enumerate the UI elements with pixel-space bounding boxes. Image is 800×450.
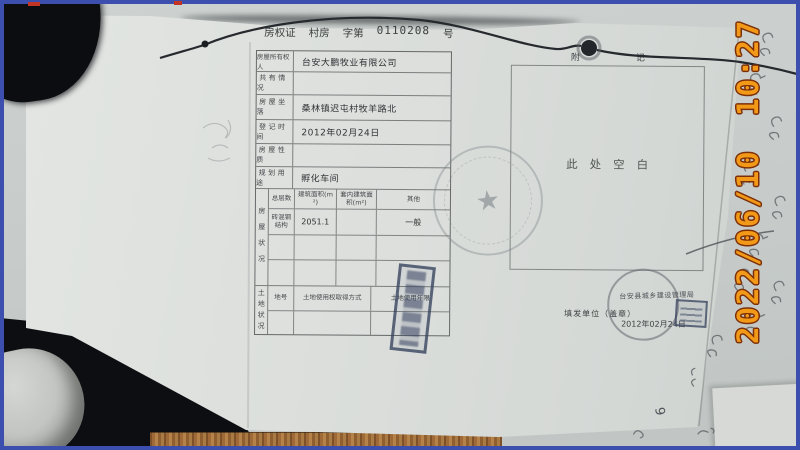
red-mark	[28, 2, 40, 6]
row-value	[294, 72, 451, 95]
table-row: 规划用途 孵化车间	[256, 167, 450, 190]
empty-cell	[294, 311, 371, 335]
certificate-hao: 号	[443, 26, 454, 41]
column-header: 总层数	[269, 189, 295, 208]
housing-data-row: 砖混钢结构 2051.1 一般	[269, 209, 450, 236]
row-value: 2012年02月24日	[293, 120, 450, 144]
table-row: 共有情况	[257, 72, 451, 96]
rect-seal-stamp	[674, 299, 708, 328]
rect-seal-lines	[680, 304, 703, 322]
vertical-seal-glyphs	[399, 270, 426, 347]
certificate-region-type: 村房	[309, 25, 330, 40]
appendix-header: 附记	[511, 50, 705, 64]
empty-cell	[268, 311, 294, 334]
certificate-number: 0110208	[377, 24, 430, 37]
section-label-vertical: 土地状况	[255, 286, 268, 334]
row-label: 房屋所有权人	[257, 51, 294, 71]
row-value: 台安大鹏牧业有限公司	[294, 51, 451, 72]
housing-header-row: 总层数 建筑面积(m²) 套内建筑面积(m²) 其他	[269, 189, 450, 210]
appendix-box: 此处空白	[509, 65, 704, 271]
star-icon: ★	[474, 184, 502, 218]
table-row: 房屋坐落 桑林镇迟屯村牧羊路北	[257, 95, 451, 121]
column-header: 套内建筑面积(m²)	[337, 190, 377, 209]
row-value	[293, 144, 450, 167]
certificate-zi-di: 字第	[343, 26, 364, 41]
table-row: 房屋性质	[256, 144, 450, 168]
column-header: 建筑面积(m²)	[295, 189, 337, 208]
row-label: 共有情况	[257, 72, 294, 94]
document-photo: 房权证 村房 字第 0110208 号 房屋所有权人 台安大鹏牧业有限公司 共有…	[0, 0, 800, 450]
row-label: 房屋坐落	[257, 95, 294, 119]
housing-empty-row	[269, 235, 450, 261]
empty-cell	[295, 235, 337, 259]
empty-cell	[294, 260, 336, 285]
row-label: 登记时间	[256, 120, 293, 143]
table-row: 房屋所有权人 台安大鹏牧业有限公司	[257, 51, 451, 73]
certificate-form: 房权证 村房 字第 0110208 号 房屋所有权人 台安大鹏牧业有限公司 共有…	[0, 0, 800, 450]
row-label: 房屋性质	[256, 144, 293, 166]
column-header: 土地使用权取得方式	[294, 286, 371, 311]
issuer-round-seal	[607, 268, 680, 341]
cell-inner-area	[337, 210, 377, 235]
row-label: 规划用途	[256, 167, 293, 188]
cell-building-area: 2051.1	[295, 209, 337, 234]
row-value: 孵化车间	[293, 167, 450, 189]
cell-structure: 砖混钢结构	[269, 209, 295, 234]
empty-cell	[337, 236, 377, 260]
section-label-vertical: 房屋状况	[255, 189, 269, 285]
red-mark	[174, 1, 182, 5]
empty-cell	[377, 236, 450, 261]
empty-cell	[336, 261, 376, 286]
blank-space-text: 此处空白	[511, 156, 703, 173]
round-seal-stamp: ★	[433, 145, 544, 256]
certificate-title: 房权证	[264, 25, 296, 40]
column-header: 地号	[268, 286, 294, 310]
certificate-header: 房权证 村房 字第 0110208 号	[264, 25, 453, 41]
table-row: 登记时间 2012年02月24日	[256, 120, 450, 145]
empty-cell	[268, 260, 294, 285]
camera-timestamp: 2022/06/10 10:27	[734, 19, 763, 344]
empty-cell	[269, 235, 295, 259]
row-value: 桑林镇迟屯村牧羊路北	[294, 95, 451, 120]
